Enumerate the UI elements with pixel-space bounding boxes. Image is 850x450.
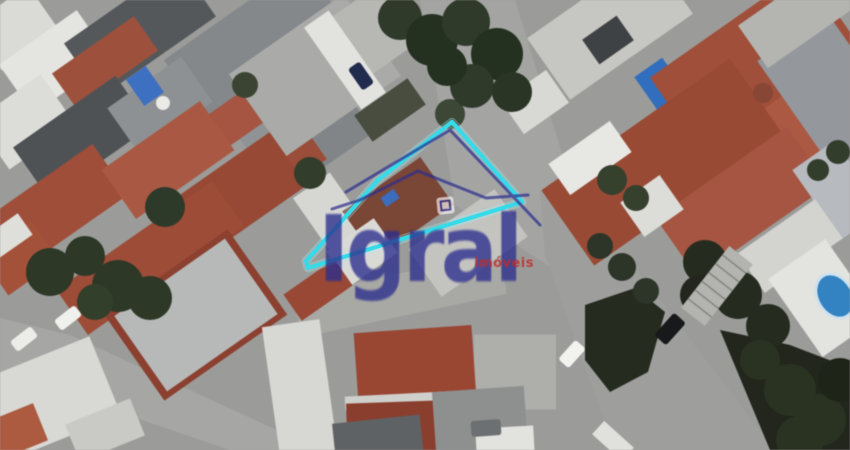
annotation-layer bbox=[0, 0, 850, 450]
watermark-badge bbox=[436, 196, 455, 215]
lot-boundary-glow bbox=[306, 122, 522, 268]
satellite-photo: Igral imóveis bbox=[0, 0, 850, 450]
watermark-roof-icon bbox=[332, 130, 540, 225]
badge-background bbox=[436, 196, 455, 215]
lot-boundary-overlay bbox=[306, 122, 522, 268]
